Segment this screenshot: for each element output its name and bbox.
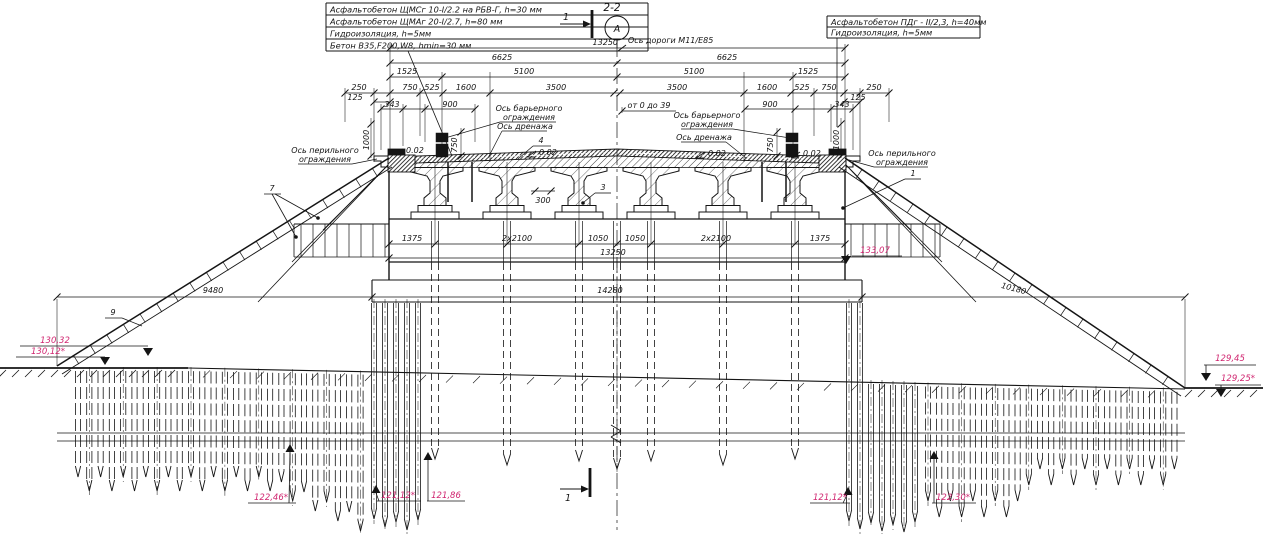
section-title: 2-2 — [603, 2, 620, 14]
callout-7: 7 — [269, 184, 275, 193]
dim-750v-right: 750 — [766, 137, 775, 152]
elevation-121-12-right: 121,12* — [813, 493, 847, 503]
dim-cap-1375-right: 1375 — [810, 234, 830, 243]
dim-525-left: 525 — [424, 83, 439, 92]
elevation-130-12: 130,12* — [31, 347, 65, 357]
dim-250-right: 250 — [866, 83, 881, 92]
spec-left-row4: Бетон В35,F200,W8, hmin=30 мм — [330, 41, 471, 51]
dim-5100-right: 5100 — [684, 67, 704, 76]
dim-343-left: 343 — [384, 100, 399, 109]
dim-1000-right: 1000 — [832, 130, 841, 150]
drawing-canvas: 2-2 А 1 1 Ось дороги М11/Е85 13250 Асфал… — [0, 0, 1263, 534]
callout-3: 3 — [600, 183, 605, 192]
callout-9: 9 — [110, 308, 115, 317]
bridge-cross-section-drawing: 2-2 А 1 1 Ось дороги М11/Е85 13250 Асфал… — [0, 0, 1263, 534]
dim-125-right: 125 — [850, 93, 865, 102]
dim-525-right: 525 — [794, 83, 809, 92]
slope-label-1: 0.02 — [406, 146, 424, 155]
elevation-133-07: 133,07 — [860, 246, 890, 256]
spec-left-row3: Гидроизоляция, h=5мм — [330, 29, 431, 39]
dim-900-right: 900 — [762, 100, 777, 109]
dim-cap-1375-left: 1375 — [402, 234, 422, 243]
slope-label-2: 0.02 — [539, 148, 557, 157]
dim-slope-9480: 9480 — [203, 286, 223, 295]
elevation-122-30: 122,30* — [936, 493, 970, 503]
barrier-axis-right-line1: Ось барьерного — [674, 111, 741, 120]
dim-3500-right: 3500 — [667, 83, 687, 92]
elevation-129-25: 129,25* — [1221, 374, 1255, 384]
elevation-122-46: 122,46* — [254, 493, 288, 503]
callout-4: 4 — [538, 136, 543, 145]
road-axis-label: Ось дороги М11/Е85 — [628, 36, 713, 45]
section-cut-bottom-label: 1 — [565, 493, 571, 504]
drainage-axis-left: Ось дренажа — [497, 122, 553, 131]
elevation-130-32: 130,32 — [40, 336, 70, 346]
dim-cap-1050-left: 1050 — [588, 234, 608, 243]
dim-1525-right: 1525 — [798, 67, 818, 76]
dim-1600-right: 1600 — [757, 83, 777, 92]
dim-5100-left: 5100 — [514, 67, 534, 76]
dim-900-left: 900 — [442, 100, 457, 109]
dim-6625-left: 6625 — [492, 53, 512, 62]
barrier-axis-right-line2: ограждения — [681, 120, 733, 129]
dim-cap-2x2100-right: 2x2100 — [701, 234, 731, 243]
spec-left-row2: Асфальтобетон ЩМАг 20-I/2.7, h=80 мм — [329, 17, 503, 27]
dim-1525-left: 1525 — [397, 67, 417, 76]
slope-label-4: 0.02 — [803, 149, 821, 158]
dim-cap-2x2100-left: 2x2100 — [502, 234, 532, 243]
railing-axis-left-line1: Ось перильного — [291, 146, 359, 155]
drainage-axis-right: Ось дренажа — [676, 133, 732, 142]
structure-graphics — [0, 3, 1263, 534]
spec-left-row1: Асфальтобетон ЩМСг 10-I/2.2 на РБВ-Г, h=… — [329, 5, 542, 15]
section-cut-top-label: 1 — [563, 12, 569, 23]
dim-1600-left: 1600 — [456, 83, 476, 92]
dim-total-13250: 13250 — [593, 38, 618, 47]
dim-slope-10180: 10180 — [1000, 281, 1027, 296]
railing-axis-right-line1: Ось перильного — [868, 149, 936, 158]
elevation-121-12-left: 121,12* — [381, 491, 415, 501]
barrier-axis-left-line2: ограждения — [503, 113, 555, 122]
dim-6625-right: 6625 — [717, 53, 737, 62]
railing-axis-right-line2: ограждения — [876, 158, 928, 167]
spec-right-row1: Асфальтобетон ПДг - II/2,3, h=40мм — [830, 17, 986, 27]
dim-3500-left: 3500 — [546, 83, 566, 92]
chainage-range-label: от 0 до 39 — [628, 101, 671, 110]
dim-cap-1050-right: 1050 — [625, 234, 645, 243]
callout-1: 1 — [910, 169, 915, 178]
dim-750-right: 750 — [821, 83, 836, 92]
railing-axis-left-line2: ограждения — [299, 155, 351, 164]
dim-750v-left: 750 — [450, 137, 459, 152]
dim-cap-total: 13250 — [600, 248, 625, 257]
elevation-129-45: 129,45 — [1215, 354, 1245, 364]
dim-300-gap: 300 — [535, 196, 550, 205]
dim-750-left: 750 — [402, 83, 417, 92]
barrier-axis-left-line1: Ось барьерного — [496, 104, 563, 113]
spec-right-row2: Гидроизоляция, h=5мм — [831, 28, 932, 38]
dim-343-right: 343 — [834, 100, 849, 109]
dim-250-left: 250 — [351, 83, 366, 92]
elevation-121-86: 121,86 — [431, 491, 461, 501]
dim-125-left: 125 — [347, 93, 362, 102]
node-circle-letter: А — [613, 24, 621, 35]
slope-label-3: 0.02 — [708, 149, 726, 158]
dim-1000-left: 1000 — [362, 130, 371, 150]
dim-footing-14280: 14280 — [597, 286, 622, 295]
